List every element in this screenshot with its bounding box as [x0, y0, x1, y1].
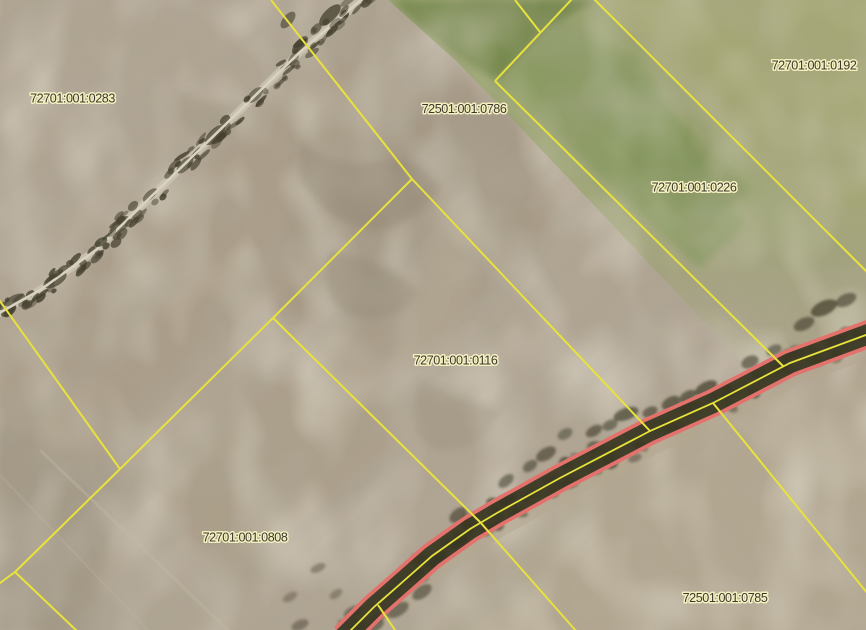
svg-text:72701:001:0192: 72701:001:0192: [772, 59, 857, 73]
svg-text:72701:001:0226: 72701:001:0226: [652, 181, 737, 195]
svg-text:72701:001:0116: 72701:001:0116: [414, 354, 498, 368]
svg-text:72501:001:0785: 72501:001:0785: [683, 591, 768, 605]
svg-text:72701:001:0808: 72701:001:0808: [203, 531, 288, 545]
svg-text:72701:001:0283: 72701:001:0283: [30, 92, 115, 106]
svg-text:72501:001:0786: 72501:001:0786: [422, 102, 507, 116]
